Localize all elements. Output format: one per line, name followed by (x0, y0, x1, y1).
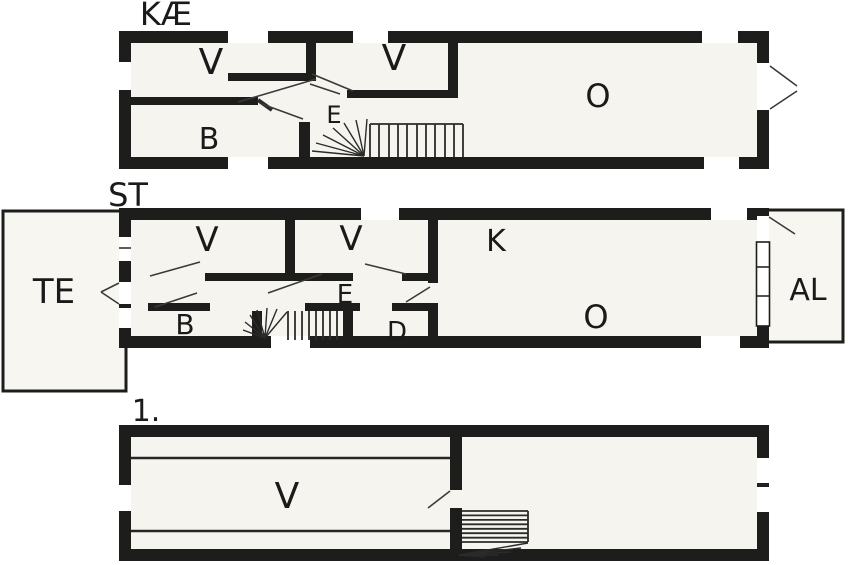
window (701, 336, 740, 348)
room-label: V (195, 220, 218, 260)
window (228, 157, 268, 169)
room-label: V (275, 476, 300, 517)
room-label: AL (789, 273, 827, 308)
floor-plan-first: 1. V (119, 394, 769, 561)
room-label: E (326, 101, 341, 129)
floor-plan-page: KÆ V V E B O (0, 0, 848, 565)
window (119, 308, 131, 328)
balcony-door-opening (757, 216, 769, 242)
window (704, 157, 739, 169)
room-label: V (382, 38, 407, 79)
room-label: E (337, 280, 353, 310)
room-label: V (339, 219, 362, 259)
floor-plan-basement: KÆ V V E B O (119, 0, 797, 169)
window (271, 336, 310, 348)
window (119, 237, 131, 261)
window (711, 208, 747, 220)
room-label: B (199, 122, 220, 157)
room-label: V (199, 42, 224, 83)
floor-label-ground: ST (108, 176, 148, 214)
floor-plan-image: KÆ V V E B O (0, 0, 848, 565)
floor-label-first: 1. (132, 394, 161, 429)
room-label: D (387, 317, 407, 347)
room-label: B (175, 308, 194, 341)
room-label: O (583, 298, 608, 336)
window (119, 485, 131, 511)
window (757, 242, 770, 326)
terrace-door-opening (119, 282, 131, 304)
window (757, 487, 769, 512)
window (119, 62, 131, 90)
exterior-door-opening (757, 63, 769, 110)
window (757, 458, 769, 483)
room-label: O (585, 77, 610, 115)
room-label: TE (32, 272, 75, 312)
window (361, 208, 399, 220)
floor-label-basement: KÆ (140, 0, 192, 33)
window (228, 31, 268, 43)
window (702, 31, 738, 43)
floor-plan-ground: ST TE V V K E B D O AL (32, 176, 827, 348)
room-label: K (486, 224, 507, 259)
